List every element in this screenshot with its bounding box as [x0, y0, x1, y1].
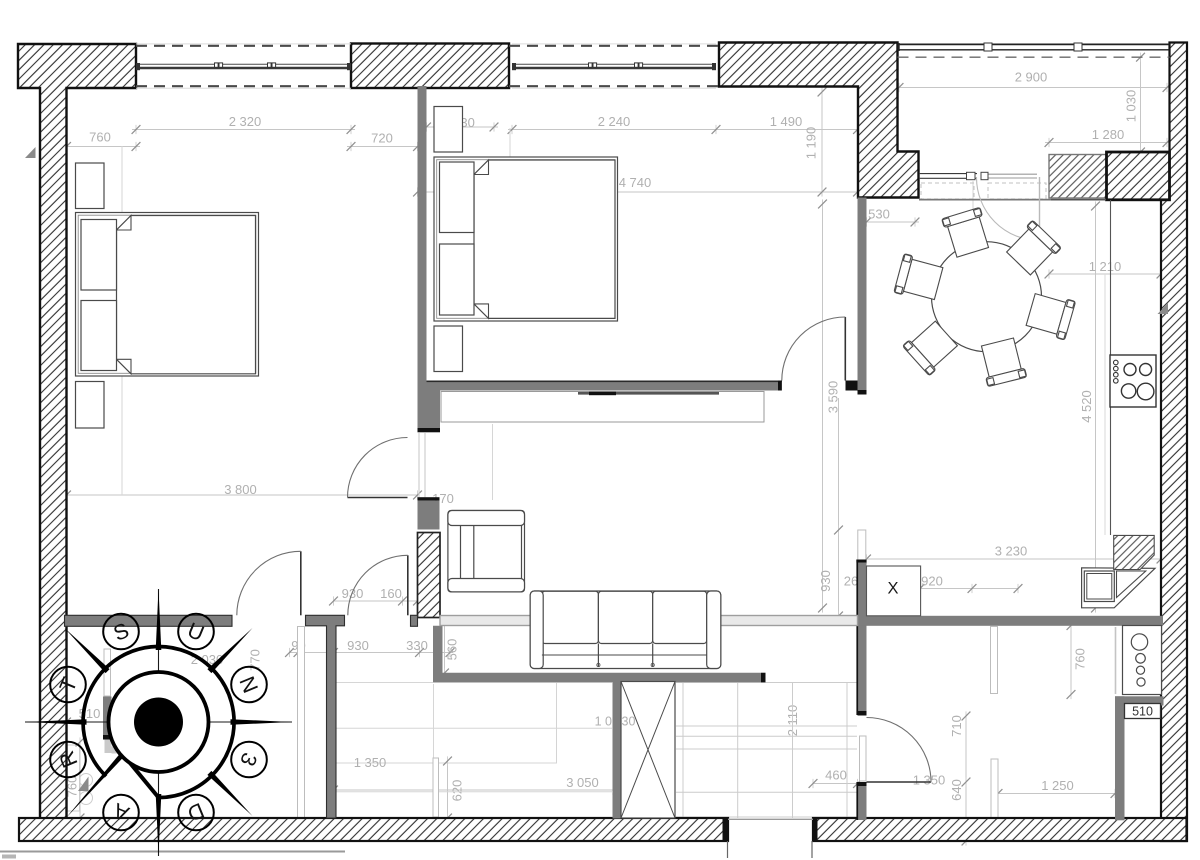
svg-text:160: 160: [380, 586, 402, 601]
svg-text:640: 640: [949, 779, 964, 801]
svg-text:1 190: 1 190: [804, 127, 819, 160]
svg-text:760: 760: [1073, 648, 1088, 670]
svg-text:530: 530: [868, 207, 890, 222]
svg-text:1 490: 1 490: [770, 114, 803, 129]
svg-text:930: 930: [347, 638, 369, 653]
svg-text:930: 930: [818, 570, 833, 592]
svg-text:1 250: 1 250: [1041, 778, 1074, 793]
svg-text:560: 560: [445, 639, 460, 661]
svg-text:510: 510: [1132, 705, 1153, 719]
svg-text:920: 920: [921, 574, 943, 589]
svg-text:30: 30: [622, 715, 636, 729]
svg-text:3 590: 3 590: [826, 381, 841, 414]
svg-text:3 230: 3 230: [995, 544, 1028, 559]
svg-text:3 800: 3 800: [224, 482, 257, 497]
svg-text:2 320: 2 320: [229, 114, 262, 129]
svg-text:2 240: 2 240: [598, 114, 631, 129]
svg-text:X: X: [887, 580, 898, 598]
svg-text:1 210: 1 210: [1089, 259, 1122, 274]
svg-text:710: 710: [949, 715, 964, 737]
svg-text:460: 460: [825, 768, 847, 783]
svg-text:1 030: 1 030: [1124, 90, 1139, 123]
svg-text:760: 760: [89, 130, 111, 145]
svg-text:930: 930: [342, 586, 364, 601]
svg-text:2 900: 2 900: [1015, 70, 1048, 85]
svg-text:4 740: 4 740: [619, 175, 652, 190]
svg-text:1 350: 1 350: [913, 773, 946, 788]
svg-text:330: 330: [406, 638, 428, 653]
svg-text:26: 26: [844, 574, 858, 589]
svg-text:4 520: 4 520: [1079, 390, 1094, 423]
svg-text:620: 620: [450, 780, 465, 802]
svg-text:1 0: 1 0: [595, 715, 612, 729]
svg-text:3 050: 3 050: [566, 775, 599, 790]
svg-text:1 350: 1 350: [354, 755, 387, 770]
svg-text:720: 720: [371, 131, 393, 146]
svg-text:1 280: 1 280: [1092, 127, 1125, 142]
